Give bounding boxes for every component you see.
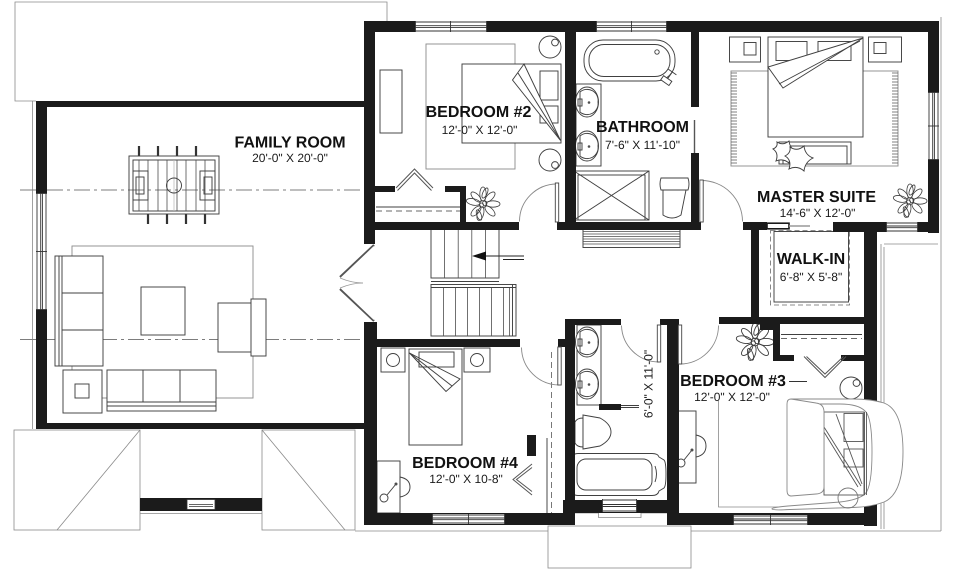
svg-text:12'-0" X 10-8": 12'-0" X 10-8" [429, 472, 503, 486]
svg-text:BEDROOM #3: BEDROOM #3 [680, 373, 786, 390]
svg-text:12'-0" X 12'-0": 12'-0" X 12'-0" [694, 390, 770, 404]
svg-text:BATHROOM: BATHROOM [596, 119, 689, 136]
svg-text:20'-0" X 20'-0": 20'-0" X 20'-0" [252, 151, 328, 165]
svg-text:6'-8" X 5'-8": 6'-8" X 5'-8" [780, 270, 842, 284]
svg-text:6'-0" X 11'-0": 6'-0" X 11'-0" [642, 350, 656, 418]
svg-text:14'-6" X 12'-0": 14'-6" X 12'-0" [780, 206, 856, 220]
svg-text:BEDROOM #4: BEDROOM #4 [412, 455, 518, 472]
svg-text:WALK-IN: WALK-IN [777, 251, 845, 268]
svg-text:7'-6" X 11'-10": 7'-6" X 11'-10" [605, 138, 680, 152]
svg-text:12'-0" X 12'-0": 12'-0" X 12'-0" [442, 123, 518, 137]
svg-text:MASTER SUITE: MASTER SUITE [757, 189, 876, 206]
svg-text:BEDROOM #2: BEDROOM #2 [426, 104, 532, 121]
svg-text:FAMILY ROOM: FAMILY ROOM [234, 135, 345, 152]
